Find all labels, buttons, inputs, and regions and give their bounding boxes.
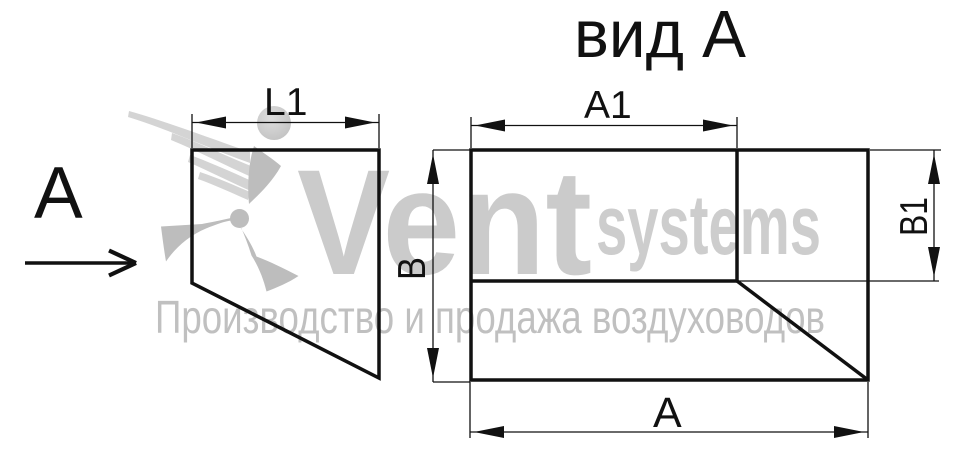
svg-text:A: A [34, 153, 83, 234]
svg-text:вид А: вид А [574, 0, 746, 72]
svg-text:A1: A1 [584, 84, 632, 127]
svg-text:B1: B1 [893, 197, 936, 236]
svg-text:systems: systems [596, 178, 821, 272]
svg-text:B: B [391, 257, 434, 280]
svg-text:A: A [653, 389, 682, 437]
svg-text:L1: L1 [264, 81, 307, 124]
